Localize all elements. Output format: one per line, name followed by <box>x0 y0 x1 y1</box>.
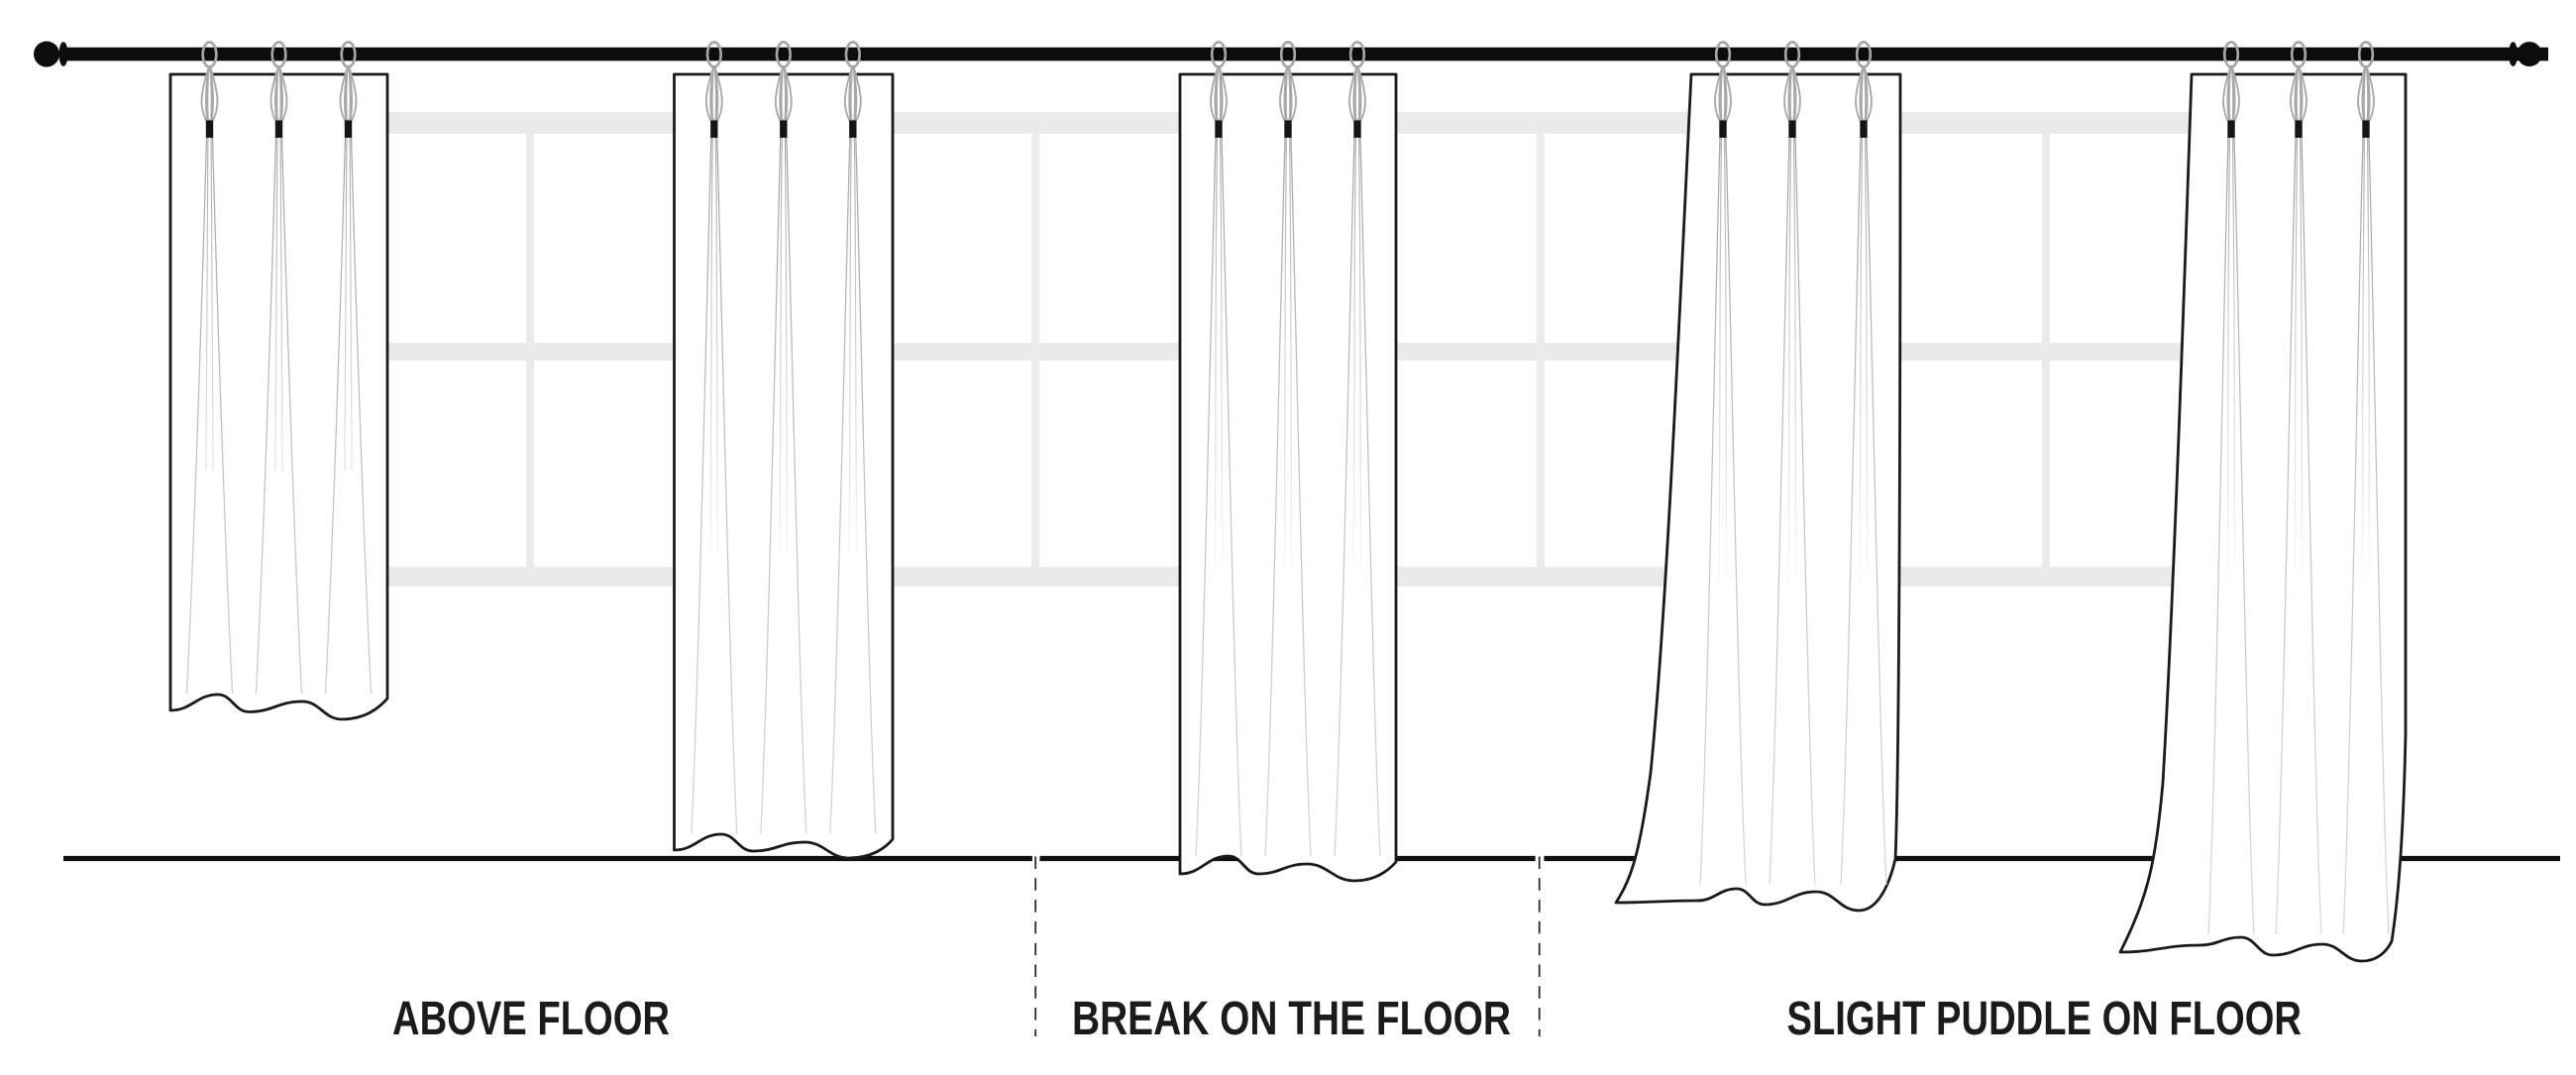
svg-text:BREAK ON THE FLOOR: BREAK ON THE FLOOR <box>1072 992 1511 1045</box>
svg-text:SLIGHT PUDDLE ON FLOOR: SLIGHT PUDDLE ON FLOOR <box>1787 992 2303 1045</box>
svg-text:ABOVE FLOOR: ABOVE FLOOR <box>392 992 670 1045</box>
